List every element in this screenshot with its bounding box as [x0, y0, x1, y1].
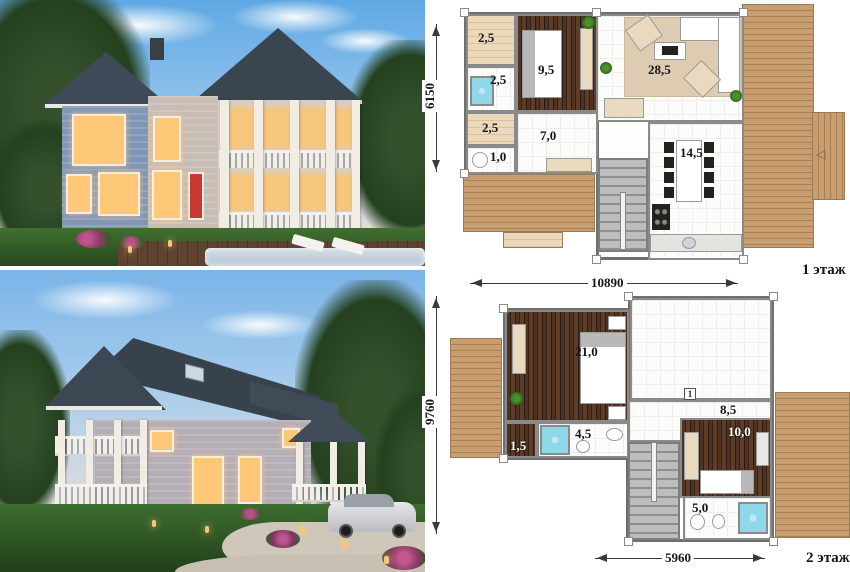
- room-open-space: [630, 298, 772, 400]
- log-corner: [592, 8, 601, 17]
- veranda-column: [220, 100, 229, 238]
- veranda-column: [290, 100, 299, 238]
- sofa-corner-side: [718, 17, 740, 93]
- path-light: [300, 526, 305, 534]
- path-light: [168, 240, 172, 247]
- wardrobe: [684, 432, 699, 480]
- staircase-rail: [651, 442, 657, 502]
- plant: [730, 90, 742, 102]
- dim-label-height-floor1: 6150: [422, 80, 438, 112]
- chimney: [150, 38, 164, 60]
- chair: [704, 187, 714, 198]
- flower-bush-pink: [266, 530, 300, 548]
- log-corner: [769, 537, 778, 546]
- car-wheel: [392, 524, 406, 538]
- area-label-wc: 1,0: [490, 149, 506, 165]
- area-label-bedroom10: 10,0: [728, 424, 751, 440]
- jacuzzi: [540, 425, 570, 455]
- door-marker: 1: [684, 388, 696, 400]
- bed: [700, 470, 754, 494]
- dim-label-width-floor2: 5960: [662, 550, 694, 566]
- flower-bush-pink: [76, 230, 112, 248]
- chair: [664, 142, 674, 153]
- area-label-bedroom: 9,5: [538, 62, 554, 78]
- area-label-hall: 7,0: [540, 128, 556, 144]
- chair: [704, 157, 714, 168]
- toilet: [690, 514, 705, 530]
- kitchen-sink: [682, 237, 696, 249]
- log-corner: [624, 537, 633, 546]
- balcony-railing-upper: [219, 150, 359, 170]
- desk: [580, 28, 593, 90]
- jacuzzi: [738, 502, 768, 534]
- nightstand: [608, 406, 626, 420]
- area-label-sauna: 2,5: [478, 30, 494, 46]
- chaise: [604, 98, 644, 118]
- path-light: [152, 520, 156, 527]
- path-light: [342, 540, 347, 548]
- window-lit: [98, 172, 140, 216]
- area-label-closet15: 1,5: [510, 438, 526, 454]
- veranda-column: [326, 100, 335, 238]
- nightstand: [608, 316, 626, 330]
- cloud: [30, 280, 180, 320]
- chair: [704, 172, 714, 183]
- bed: [580, 332, 626, 404]
- log-corner: [739, 8, 748, 17]
- stove: [652, 204, 670, 230]
- bidet: [712, 514, 725, 529]
- path-light: [128, 246, 132, 253]
- car-cabin: [344, 494, 394, 510]
- photo-house-rear: [0, 270, 425, 572]
- porch-railing: [55, 484, 147, 506]
- window-lit: [72, 114, 126, 166]
- floor-plan-2: 1 21,0 1,5 4,5 8,5 10,0 5,0 9760: [430, 292, 850, 572]
- flower-bush-pink: [238, 508, 262, 520]
- window-lit: [238, 456, 262, 504]
- area-label-bath: 2,5: [490, 72, 506, 88]
- area-label-closet: 2,5: [482, 120, 498, 136]
- log-corner: [624, 292, 633, 301]
- coffee-table-tray: [662, 46, 678, 55]
- plant: [600, 62, 612, 74]
- area-label-bedroom21: 21,0: [575, 344, 598, 360]
- window-lit: [192, 456, 224, 506]
- plant: [510, 392, 523, 405]
- shelf: [756, 432, 769, 466]
- staircase-rail: [620, 192, 626, 250]
- deck-stair-arrow: ◁: [816, 148, 825, 160]
- log-corner: [739, 255, 748, 264]
- chair: [664, 172, 674, 183]
- balcony-railing: [55, 436, 147, 456]
- kitchen-counter: [650, 234, 742, 252]
- area-label-kitchen: 14,5: [680, 145, 703, 161]
- window-lit: [153, 116, 181, 162]
- chair: [704, 142, 714, 153]
- log-corner: [460, 8, 469, 17]
- floor1-caption: 1 этаж: [802, 262, 846, 279]
- terrace-bottom-left: [463, 174, 595, 232]
- terrace-step: [503, 232, 563, 248]
- path-light: [384, 556, 389, 564]
- area-label-bath50: 5,0: [692, 500, 708, 516]
- toilet: [472, 152, 488, 168]
- red-door: [188, 172, 204, 220]
- veranda-column: [352, 100, 360, 238]
- log-corner: [499, 454, 508, 463]
- hall-bench: [546, 158, 592, 172]
- veranda-column: [254, 100, 263, 238]
- log-corner: [460, 169, 469, 178]
- balcony-right: [775, 392, 850, 538]
- dim-label-height-floor2: 9760: [422, 396, 438, 428]
- log-corner: [769, 292, 778, 301]
- roof-fascia: [46, 406, 162, 410]
- plant: [582, 16, 595, 29]
- chair: [664, 187, 674, 198]
- car-wheel: [339, 524, 353, 538]
- dim-label-width-floor1: 10890: [588, 275, 627, 291]
- toilet: [606, 428, 623, 441]
- window-lit: [152, 170, 182, 220]
- dresser: [512, 324, 526, 374]
- log-corner: [592, 255, 601, 264]
- window-lit: [150, 430, 174, 452]
- path-light: [205, 526, 209, 533]
- floor2-caption: 2 этаж: [806, 550, 850, 567]
- window-lit: [66, 174, 92, 214]
- log-corner: [499, 304, 508, 313]
- pool: [205, 248, 425, 266]
- area-label-living: 28,5: [648, 62, 671, 78]
- floor-plan-1: ◁: [430, 0, 850, 292]
- area-label-bath45: 4,5: [575, 426, 591, 442]
- balcony-left: [450, 338, 502, 458]
- photo-house-front: [0, 0, 425, 266]
- deck-right: [742, 4, 814, 248]
- area-label-hall85: 8,5: [720, 402, 736, 418]
- real-estate-collage: ◁: [0, 0, 850, 572]
- chair: [664, 157, 674, 168]
